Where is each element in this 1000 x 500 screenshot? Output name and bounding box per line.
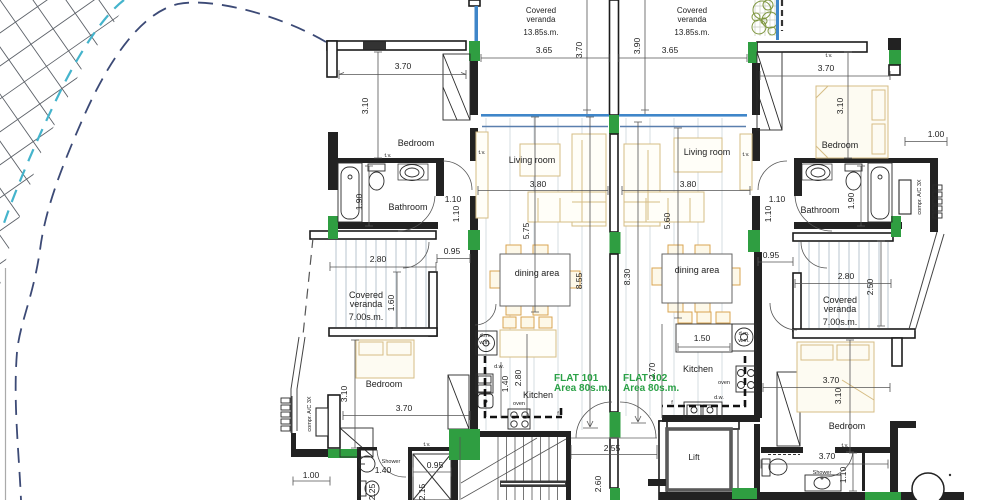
svg-text:Lift: Lift xyxy=(688,452,700,462)
svg-text:Kitchen: Kitchen xyxy=(683,364,713,374)
svg-text:1.90: 1.90 xyxy=(846,192,856,209)
svg-text:0.95: 0.95 xyxy=(763,250,780,260)
svg-text:veranda: veranda xyxy=(824,304,857,314)
svg-text:3.70: 3.70 xyxy=(818,63,835,73)
svg-text:oven: oven xyxy=(513,401,525,407)
svg-text:dining area: dining area xyxy=(675,265,720,275)
svg-text:d.w.: d.w. xyxy=(494,364,504,370)
svg-text:2.50: 2.50 xyxy=(865,278,875,295)
svg-text:Bedroom: Bedroom xyxy=(398,138,435,148)
svg-text:8.30: 8.30 xyxy=(622,268,632,285)
svg-text:d.w.: d.w. xyxy=(714,395,724,401)
svg-text:3.80: 3.80 xyxy=(680,179,697,189)
svg-text:0.95: 0.95 xyxy=(427,460,444,470)
svg-text:3.65: 3.65 xyxy=(662,45,679,55)
svg-text:5.60: 5.60 xyxy=(662,212,672,229)
svg-text:dining area: dining area xyxy=(515,268,560,278)
svg-text:2.80: 2.80 xyxy=(838,271,855,281)
svg-text:Shower: Shower xyxy=(813,470,832,476)
svg-text:2.80: 2.80 xyxy=(513,369,523,386)
svg-text:1.10: 1.10 xyxy=(838,466,848,483)
svg-text:t.v.: t.v. xyxy=(479,150,486,156)
svg-text:t.v.: t.v. xyxy=(743,152,750,158)
svg-text:7.00s.m.: 7.00s.m. xyxy=(349,312,384,322)
svg-text:Covered: Covered xyxy=(677,6,707,15)
svg-text:t.v.: t.v. xyxy=(385,153,392,159)
svg-text:2.55: 2.55 xyxy=(604,443,621,453)
svg-text:w.m.: w.m. xyxy=(478,340,491,346)
svg-text:1.00: 1.00 xyxy=(928,129,945,139)
svg-text:0.95: 0.95 xyxy=(444,246,461,256)
svg-text:Area 80s.m.: Area 80s.m. xyxy=(554,383,610,394)
svg-text:t.v.: t.v. xyxy=(424,442,431,448)
svg-text:compr. A/C 3X: compr. A/C 3X xyxy=(917,179,923,214)
svg-text:3.65: 3.65 xyxy=(536,45,553,55)
svg-text:1.10: 1.10 xyxy=(445,194,462,204)
svg-text:veranda: veranda xyxy=(350,299,383,309)
svg-text:13.85s.m.: 13.85s.m. xyxy=(523,28,558,37)
svg-text:oven: oven xyxy=(718,380,730,386)
svg-text:1.60: 1.60 xyxy=(386,294,396,311)
svg-text:3.10: 3.10 xyxy=(339,385,349,402)
svg-text:Living room: Living room xyxy=(684,147,731,157)
svg-text:1.40: 1.40 xyxy=(375,465,392,475)
svg-text:1.00: 1.00 xyxy=(303,470,320,480)
svg-text:7.00s.m.: 7.00s.m. xyxy=(823,317,858,327)
svg-text:3.80: 3.80 xyxy=(530,179,547,189)
svg-text:Kitchen: Kitchen xyxy=(523,390,553,400)
svg-text:Living room: Living room xyxy=(509,155,556,165)
svg-text:8.55: 8.55 xyxy=(574,272,584,289)
svg-text:t.v.: t.v. xyxy=(842,443,849,449)
svg-text:1.10: 1.10 xyxy=(451,205,461,222)
svg-text:1.90: 1.90 xyxy=(354,193,364,210)
svg-text:Bedroom: Bedroom xyxy=(366,379,403,389)
svg-text:compr. A/C 3X: compr. A/C 3X xyxy=(307,396,313,431)
svg-text:1.10: 1.10 xyxy=(769,194,786,204)
svg-text:3.70: 3.70 xyxy=(819,451,836,461)
svg-text:Bedroom: Bedroom xyxy=(822,140,859,150)
svg-text:Bathroom: Bathroom xyxy=(800,205,839,215)
svg-text:3.10: 3.10 xyxy=(360,97,370,114)
svg-text:3.70: 3.70 xyxy=(574,41,584,58)
svg-text:t.v.: t.v. xyxy=(826,53,833,59)
svg-text:3.90: 3.90 xyxy=(632,37,642,54)
svg-text:3.10: 3.10 xyxy=(835,97,845,114)
svg-text:Bedroom: Bedroom xyxy=(829,421,866,431)
svg-text:Covered: Covered xyxy=(526,6,556,15)
svg-text:3.70: 3.70 xyxy=(823,375,840,385)
svg-text:5.75: 5.75 xyxy=(521,222,531,239)
svg-text:13.85s.m.: 13.85s.m. xyxy=(674,28,709,37)
svg-text:2.80: 2.80 xyxy=(370,254,387,264)
svg-text:veranda: veranda xyxy=(527,15,556,24)
svg-text:Area 80s.m.: Area 80s.m. xyxy=(623,383,679,394)
svg-text:2.60: 2.60 xyxy=(593,475,603,492)
svg-text:2.25: 2.25 xyxy=(367,483,377,500)
svg-text:veranda: veranda xyxy=(678,15,707,24)
svg-text:1.50: 1.50 xyxy=(694,333,711,343)
svg-text:3.10: 3.10 xyxy=(833,387,843,404)
svg-text:3.70: 3.70 xyxy=(395,61,412,71)
svg-text:w.m.: w.m. xyxy=(737,338,750,344)
svg-text:3.70: 3.70 xyxy=(396,403,413,413)
svg-text:2.15: 2.15 xyxy=(417,483,427,500)
svg-text:d.m.: d.m. xyxy=(739,331,750,337)
svg-text:Bathroom: Bathroom xyxy=(388,202,427,212)
svg-text:1.40: 1.40 xyxy=(500,375,510,392)
svg-text:d.m.: d.m. xyxy=(480,333,491,339)
svg-text:1.10: 1.10 xyxy=(763,205,773,222)
